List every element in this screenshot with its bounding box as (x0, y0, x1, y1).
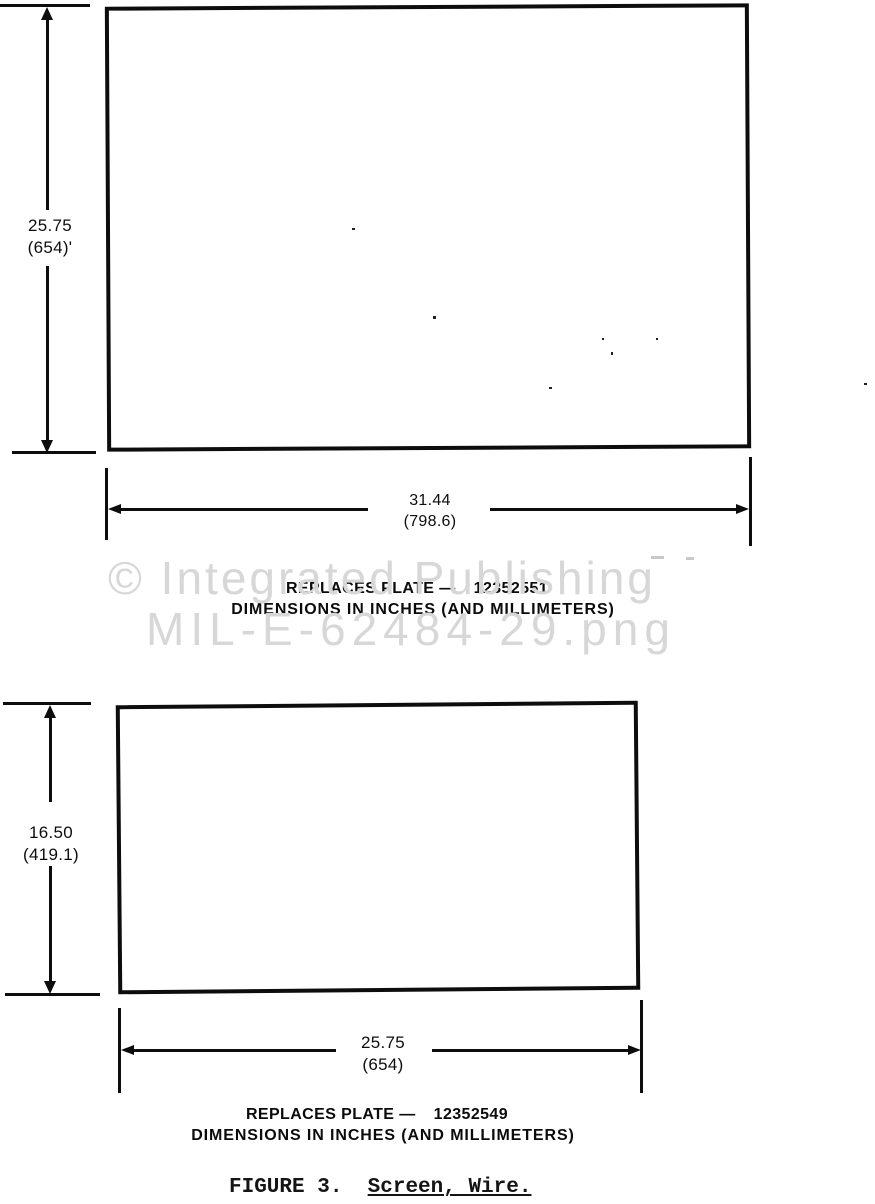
bottom-width-inches: 25.75 (361, 1033, 405, 1052)
scan-speck (352, 228, 355, 230)
top-vertical-dim-line-a (46, 18, 49, 210)
bottom-height-dimension: 16.50 (419.1) (14, 822, 88, 866)
bottom-horizontal-dim-arrow-right (628, 1045, 641, 1055)
scan-smudge (686, 557, 694, 560)
bottom-horizontal-dim-line-b (432, 1049, 630, 1052)
scan-speck (656, 338, 658, 340)
bottom-replaces-label: REPLACES PLATE — (246, 1106, 416, 1124)
bottom-units-note: DIMENSIONS IN INCHES (AND MILLIMETERS) (188, 1127, 578, 1145)
bottom-vertical-dim-arrow-down (44, 981, 56, 994)
figure-caption: FIGURE 3. Screen, Wire. (229, 1176, 531, 1199)
top-height-dimension: 25.75 (654)' (16, 215, 84, 259)
scan-speck (611, 352, 613, 355)
top-horizontal-dim-arrow-right (736, 504, 749, 514)
bottom-vertical-dim-line-b (49, 866, 52, 983)
scan-speck (602, 338, 604, 340)
watermark-filename: MIL-E-62484-29.png (146, 602, 676, 656)
bottom-plate-number: 12352549 (434, 1106, 508, 1124)
bottom-screen-outline (116, 701, 641, 995)
bottom-width-dimension: 25.75 (654) (333, 1032, 433, 1076)
top-screen-outline (105, 3, 751, 451)
top-horizontal-dim-line-a (118, 508, 368, 511)
figure-caption-label: FIGURE 3. (229, 1176, 342, 1199)
top-width-inches: 31.44 (409, 492, 451, 509)
bottom-vertical-dim-line-a (49, 716, 52, 802)
scanned-drawing-page: 25.75 (654)' 31.44 (798.6) REPLACES PLAT… (0, 0, 875, 1204)
figure-caption-title: Screen, Wire. (368, 1176, 532, 1199)
watermark-publisher: © Integrated Publishing (108, 551, 656, 605)
bottom-height-mm: (419.1) (14, 844, 88, 866)
top-horizontal-dim-line-b (490, 508, 739, 511)
scan-smudge (651, 556, 664, 559)
top-vertical-dim-line-b (46, 266, 49, 442)
top-height-inches: 25.75 (28, 216, 72, 235)
top-vertical-dim-arrow-down (41, 440, 53, 453)
bottom-height-inches: 16.50 (29, 823, 73, 842)
scan-speck (864, 383, 867, 385)
bottom-width-mm: (654) (333, 1054, 433, 1076)
top-height-mm: (654)' (16, 237, 84, 259)
top-extension-tick-lower (12, 451, 96, 454)
figure-caption-separator (342, 1176, 367, 1199)
top-width-dimension: 31.44 (798.6) (380, 491, 480, 533)
top-extension-line-right (749, 457, 752, 546)
bottom-horizontal-dim-line-a (130, 1049, 336, 1052)
scan-speck (549, 387, 552, 389)
bottom-replaces-note: REPLACES PLATE — 12352549 (227, 1106, 527, 1124)
top-width-mm: (798.6) (380, 512, 480, 533)
scan-speck (433, 316, 436, 319)
